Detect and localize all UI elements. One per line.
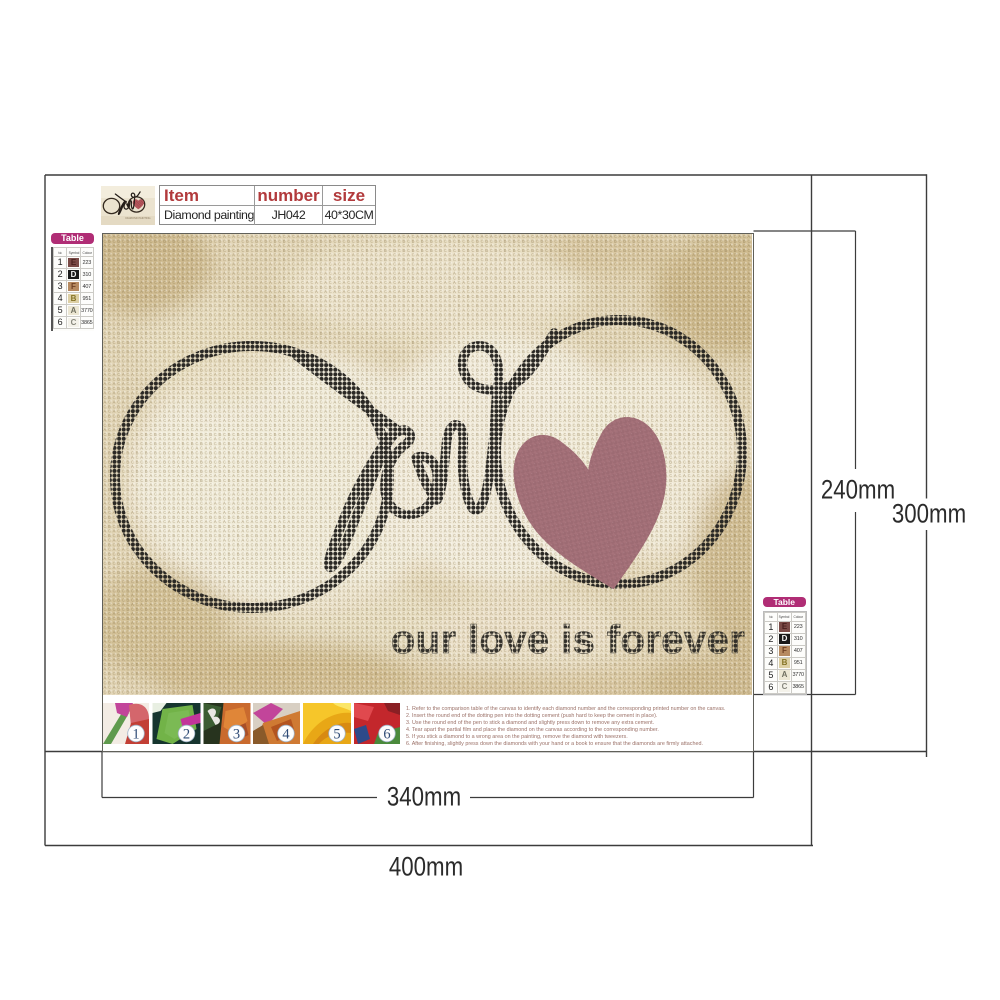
svg-text:1: 1 [132,726,139,742]
svg-text:2: 2 [182,726,189,742]
svg-text:6: 6 [383,726,390,742]
svg-text:4: 4 [282,726,290,742]
svg-text:5: 5 [333,726,340,742]
svg-text:our love is forever: our love is forever [391,618,745,662]
svg-text:3: 3 [232,726,239,742]
svg-text:DIAMOND PAINTING: DIAMOND PAINTING [125,216,150,220]
